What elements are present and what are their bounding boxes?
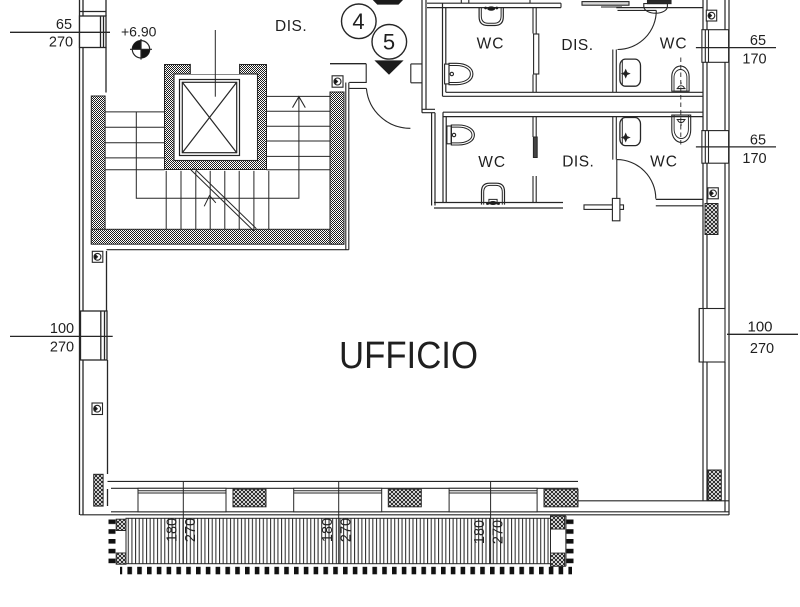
svg-text:270: 270 xyxy=(183,518,199,542)
svg-text:270: 270 xyxy=(490,520,506,544)
svg-text:65: 65 xyxy=(750,133,766,149)
svg-text:WC: WC xyxy=(660,36,688,53)
svg-text:170: 170 xyxy=(742,52,766,68)
svg-text:DIS.: DIS. xyxy=(275,18,307,35)
svg-text:65: 65 xyxy=(56,17,72,33)
svg-text:270: 270 xyxy=(49,35,73,51)
svg-text:UFFICIO: UFFICIO xyxy=(339,335,478,377)
svg-text:180: 180 xyxy=(320,518,336,542)
svg-text:170: 170 xyxy=(742,151,766,167)
svg-text:5: 5 xyxy=(383,30,395,55)
svg-text:DIS.: DIS. xyxy=(561,37,593,54)
svg-text:270: 270 xyxy=(50,340,74,356)
svg-text:WC: WC xyxy=(477,36,505,53)
svg-text:180: 180 xyxy=(472,520,488,544)
svg-text:100: 100 xyxy=(50,321,74,337)
svg-text:270: 270 xyxy=(338,518,354,542)
svg-text:4: 4 xyxy=(352,9,364,34)
svg-text:270: 270 xyxy=(750,341,774,357)
svg-text:DIS.: DIS. xyxy=(562,154,594,171)
svg-text:WC: WC xyxy=(478,154,506,171)
svg-text:65: 65 xyxy=(750,33,766,49)
svg-text:180: 180 xyxy=(165,518,181,542)
svg-text:100: 100 xyxy=(747,319,772,336)
svg-text:+6.90: +6.90 xyxy=(121,24,157,40)
svg-text:WC: WC xyxy=(650,154,678,171)
